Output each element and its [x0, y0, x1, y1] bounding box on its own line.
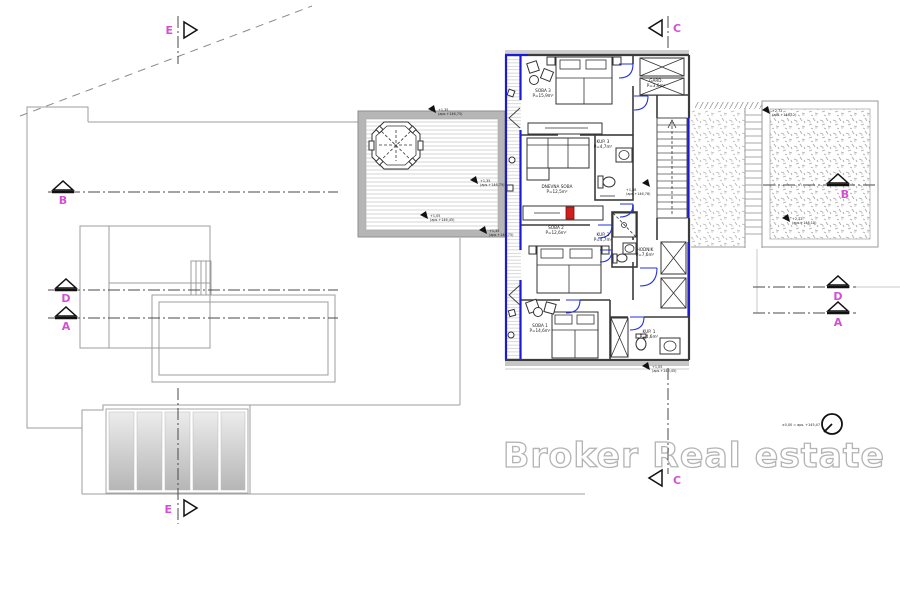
section-marker-b-left: B — [59, 194, 67, 207]
section-triangle-icon — [184, 22, 197, 38]
svg-text:(aps.+146,75): (aps.+146,75) — [480, 183, 505, 187]
section-triangle-icon — [184, 500, 197, 516]
room-area: P=7,6m² — [636, 252, 655, 257]
svg-text:(aps.+146,78): (aps.+146,78) — [626, 192, 651, 196]
bed-icon — [537, 246, 601, 293]
level-note: ±0,00 = aps. +145,47 — [782, 423, 820, 427]
table-icon — [530, 76, 539, 85]
section-marker-c-top: C — [673, 22, 681, 35]
balcony-strip — [506, 55, 521, 360]
svg-text:(aps.+146,45): (aps.+146,45) — [430, 218, 455, 222]
section-triangle-icon — [828, 276, 848, 285]
room-area: P=4,7m² — [594, 237, 613, 242]
bed-icon — [556, 57, 612, 104]
wardrobe-icon — [640, 58, 684, 76]
table-icon — [534, 308, 543, 317]
toilet-icon — [613, 254, 627, 263]
gravel-terrace — [691, 101, 878, 248]
toilet-icon — [598, 176, 615, 188]
sink-icon — [660, 338, 680, 354]
floor-plan-drawing: SOBA 3 P=15,9m² GARD. P=3,6m² KUP. 3 P=4… — [0, 0, 900, 600]
section-triangle-icon — [649, 20, 662, 36]
section-marker-a-left: A — [62, 320, 71, 333]
blueprint-page: SOBA 3 P=15,9m² GARD. P=3,6m² KUP. 3 P=4… — [0, 0, 900, 600]
section-marker-e-bottom: E — [164, 503, 172, 516]
sink-icon — [616, 148, 632, 162]
floor-plan: SOBA 3 P=15,9m² GARD. P=3,6m² KUP. 3 P=4… — [505, 50, 689, 369]
section-triangle-icon — [56, 279, 76, 288]
section-marker-e-top: E — [165, 24, 173, 37]
svg-text:(aps.+146,75): (aps.+146,75) — [438, 112, 463, 116]
pool — [152, 295, 335, 382]
level-mark: ±0,00 = aps. +145,47 — [782, 414, 842, 434]
slat-steps — [745, 108, 762, 248]
section-triangle-icon — [828, 302, 848, 311]
watermark: Broker Real estate — [503, 436, 885, 476]
jacuzzi-icon — [369, 122, 423, 169]
room-area: P=4,7m² — [594, 144, 613, 149]
section-triangle-icon — [53, 181, 73, 190]
section-marker-c-bottom: C — [673, 474, 681, 487]
svg-text:(aps.+146,45): (aps.+146,45) — [652, 369, 677, 373]
sideboard-icon — [528, 123, 602, 134]
accent-red-marker — [566, 207, 574, 219]
sink-icon — [623, 243, 636, 254]
chair-icon — [544, 302, 556, 314]
section-triangle-icon — [56, 307, 76, 316]
svg-text:(aps.+148,12): (aps.+148,12) — [792, 221, 817, 225]
room-area: P=12,5m² — [546, 189, 567, 194]
shower-icon — [611, 318, 628, 357]
section-marker-a-right: A — [834, 316, 843, 329]
exterior-stairs — [106, 409, 248, 493]
section-marker-d-left: D — [61, 292, 70, 305]
svg-text:(aps.+148,12): (aps.+148,12) — [772, 113, 797, 117]
wardrobe-icon — [661, 278, 686, 308]
section-marker-b-right: B — [841, 188, 849, 201]
room-area: P=14,6m² — [529, 328, 550, 333]
room-area: P=15,9m² — [532, 93, 553, 98]
room-area: P=4,6m² — [640, 334, 659, 339]
room-area: P=12,6m² — [545, 230, 566, 235]
bed-icon — [552, 312, 598, 358]
desk-icon — [523, 206, 603, 220]
svg-text:(aps.+146,75): (aps.+146,75) — [489, 233, 514, 237]
roof-edge-band — [505, 50, 689, 54]
wardrobe-icon — [661, 242, 686, 274]
boundary-diagonal — [20, 6, 312, 116]
lower-building — [80, 226, 211, 348]
room-area: P=3,6m² — [647, 83, 666, 88]
